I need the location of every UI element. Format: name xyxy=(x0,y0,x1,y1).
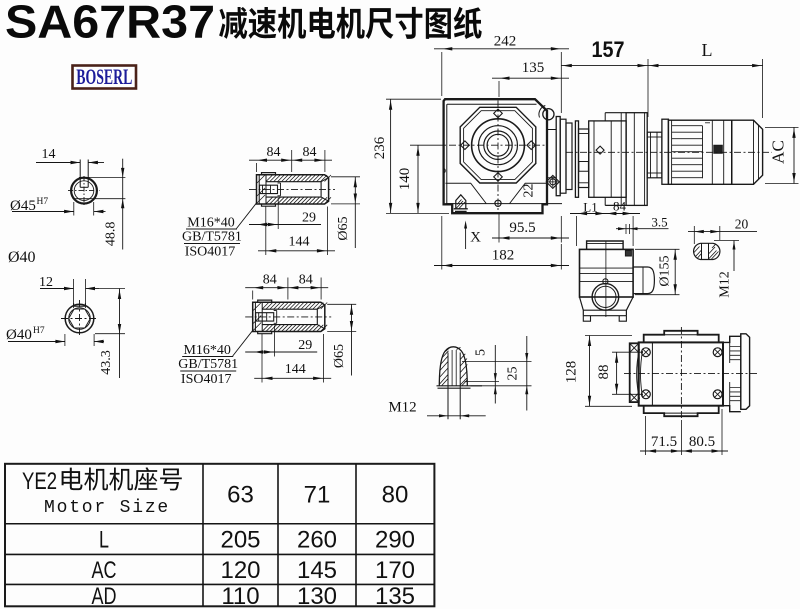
svg-text:135: 135 xyxy=(522,60,545,76)
svg-text:SA67R37: SA67R37 xyxy=(5,0,215,48)
svg-text:145: 145 xyxy=(297,557,337,584)
svg-text:14: 14 xyxy=(42,147,56,162)
svg-text:205: 205 xyxy=(220,527,260,554)
svg-text:144: 144 xyxy=(285,362,306,377)
svg-text:182: 182 xyxy=(492,248,515,264)
svg-text:120: 120 xyxy=(220,557,260,584)
svg-text:29: 29 xyxy=(302,211,316,226)
svg-text:20: 20 xyxy=(735,216,749,231)
svg-text:80: 80 xyxy=(382,482,409,509)
svg-text:135: 135 xyxy=(375,583,415,609)
svg-text:12: 12 xyxy=(39,275,53,290)
svg-text:H7: H7 xyxy=(37,197,49,207)
svg-text:71: 71 xyxy=(304,482,331,509)
svg-text:22: 22 xyxy=(522,184,537,198)
svg-text:X: X xyxy=(470,230,481,246)
svg-text:290: 290 xyxy=(375,527,415,554)
svg-text:AC: AC xyxy=(769,140,788,164)
svg-text:Ø40: Ø40 xyxy=(6,327,32,343)
svg-text:84: 84 xyxy=(263,273,277,288)
svg-text:25: 25 xyxy=(506,367,521,381)
svg-text:Ø65: Ø65 xyxy=(332,344,347,368)
svg-text:ISO4017: ISO4017 xyxy=(185,245,236,260)
svg-text:AC: AC xyxy=(92,557,117,584)
svg-text:43.3: 43.3 xyxy=(99,350,114,375)
svg-text:63: 63 xyxy=(227,482,254,509)
svg-text:M12: M12 xyxy=(388,400,416,416)
svg-text:L: L xyxy=(702,40,713,60)
svg-text:Motor Size: Motor Size xyxy=(44,498,170,518)
svg-text:110: 110 xyxy=(221,583,259,609)
svg-text:130: 130 xyxy=(297,583,337,609)
svg-text:29: 29 xyxy=(298,338,312,353)
svg-text:3.5: 3.5 xyxy=(651,215,667,230)
svg-text:140: 140 xyxy=(397,168,413,191)
svg-text:ISO4017: ISO4017 xyxy=(181,372,232,387)
svg-text:157: 157 xyxy=(592,37,625,62)
svg-text:BOSERL: BOSERL xyxy=(76,64,132,89)
svg-text:GB/T5781: GB/T5781 xyxy=(182,230,242,245)
svg-text:71.5: 71.5 xyxy=(651,434,677,450)
svg-text:88: 88 xyxy=(596,365,612,380)
svg-text:M16*40: M16*40 xyxy=(183,343,230,358)
svg-text:AD: AD xyxy=(92,583,117,609)
svg-text:84: 84 xyxy=(613,199,627,214)
svg-text:80.5: 80.5 xyxy=(689,434,715,450)
svg-text:Ø40: Ø40 xyxy=(8,249,36,266)
svg-text:84: 84 xyxy=(299,273,313,288)
svg-text:YE2: YE2 xyxy=(22,468,57,495)
svg-text:M16*40: M16*40 xyxy=(187,216,234,231)
svg-text:48.8: 48.8 xyxy=(104,222,119,247)
svg-text:5: 5 xyxy=(474,349,489,356)
svg-text:84: 84 xyxy=(303,145,317,160)
svg-text:242: 242 xyxy=(494,34,517,50)
svg-text:95.5: 95.5 xyxy=(509,220,535,236)
svg-text:84: 84 xyxy=(267,145,281,160)
svg-text:Ø65: Ø65 xyxy=(336,216,351,240)
svg-text:170: 170 xyxy=(375,557,415,584)
svg-text:H7: H7 xyxy=(33,326,45,336)
svg-text:M12: M12 xyxy=(718,271,733,297)
svg-text:144: 144 xyxy=(289,235,310,250)
svg-text:260: 260 xyxy=(297,527,337,554)
svg-text:Ø155: Ø155 xyxy=(658,255,673,286)
svg-text:L: L xyxy=(99,527,109,554)
svg-text:128: 128 xyxy=(564,361,580,384)
svg-text:236: 236 xyxy=(372,136,388,159)
svg-text:GB/T5781: GB/T5781 xyxy=(178,357,238,372)
